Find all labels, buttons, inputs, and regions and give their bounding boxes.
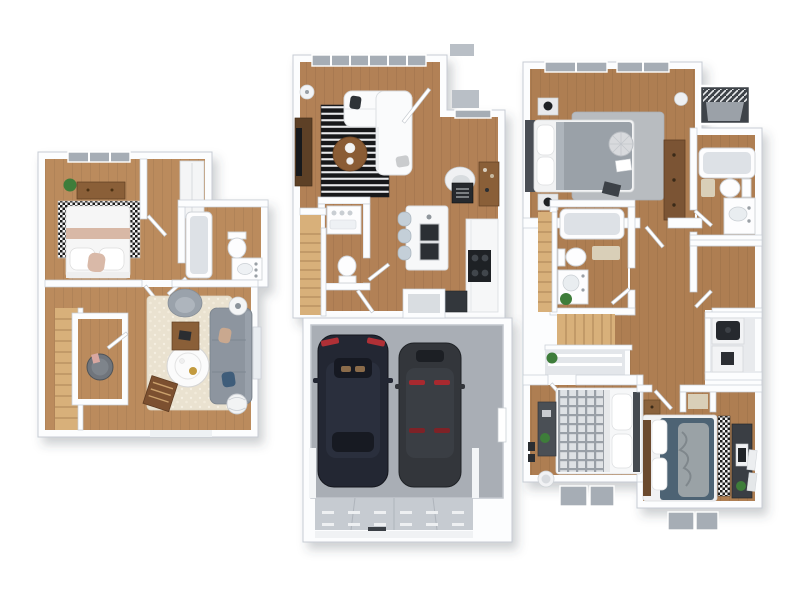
bar-cabinet bbox=[479, 162, 499, 206]
lamp-icon bbox=[544, 102, 553, 111]
vase bbox=[675, 93, 688, 106]
floor-plan-image bbox=[0, 0, 800, 600]
long-dresser bbox=[664, 140, 685, 220]
bedroom-window bbox=[68, 152, 130, 162]
hall-toilet bbox=[558, 248, 586, 266]
exterior-stoop bbox=[452, 90, 479, 108]
potted-plant-icon bbox=[64, 179, 77, 192]
bedroom3-window-b bbox=[696, 512, 718, 530]
dresser bbox=[77, 182, 125, 199]
balcony-railing bbox=[703, 89, 747, 102]
balcony-deck bbox=[706, 102, 744, 121]
closet-plant-icon bbox=[547, 353, 558, 364]
windshield bbox=[332, 432, 374, 452]
nightstand-top bbox=[538, 98, 558, 115]
exterior-pad-top bbox=[450, 44, 474, 56]
stool-1 bbox=[398, 212, 411, 226]
master-vanity bbox=[724, 198, 755, 234]
bath-wall-left bbox=[178, 207, 185, 263]
bed-teal bbox=[643, 415, 717, 501]
living-wall-b bbox=[172, 280, 258, 287]
balcony bbox=[700, 86, 750, 124]
bedroom2-desk bbox=[538, 402, 556, 456]
linen-closet bbox=[545, 350, 625, 375]
tv-console bbox=[295, 118, 312, 186]
bedroom2-window-b bbox=[590, 486, 614, 506]
bath-mat bbox=[701, 179, 715, 197]
island-faucet bbox=[427, 215, 432, 220]
hall-tub bbox=[560, 209, 624, 239]
hall-bath-mat bbox=[592, 246, 620, 260]
utility-closet bbox=[72, 313, 128, 405]
book bbox=[615, 159, 631, 172]
powder-toilet bbox=[338, 256, 356, 283]
master-wall-b bbox=[668, 218, 702, 228]
bedroom2-window-a bbox=[560, 486, 587, 506]
kitchen-window bbox=[455, 110, 491, 118]
bed-plaid bbox=[556, 388, 642, 474]
vanity-lower bbox=[232, 258, 262, 280]
living-window-right bbox=[253, 327, 261, 379]
plan-upper-level bbox=[523, 62, 762, 530]
island-sink-a bbox=[420, 224, 439, 241]
basket bbox=[227, 394, 247, 414]
island-sink-b bbox=[420, 243, 439, 260]
master-toilet bbox=[720, 179, 751, 197]
wall-frame-a bbox=[528, 442, 535, 451]
garage-threshold bbox=[315, 531, 473, 538]
bedroom3-nightstand bbox=[644, 400, 660, 414]
vanity-plant-icon bbox=[560, 293, 572, 305]
textured-throw bbox=[678, 423, 709, 497]
toilet-lower bbox=[228, 232, 246, 258]
plan-lower-level bbox=[38, 152, 268, 437]
bedroom3-window-a bbox=[668, 512, 694, 530]
dark-pillow bbox=[349, 95, 362, 109]
living-window-bottom bbox=[150, 430, 212, 437]
living-wall-a bbox=[45, 280, 142, 287]
coat-closet bbox=[403, 289, 445, 318]
round-dining-table bbox=[333, 137, 367, 171]
bed-lower bbox=[66, 206, 130, 278]
kitchen-counter bbox=[466, 219, 498, 312]
garage-door-apron bbox=[315, 498, 473, 531]
laundry-closet bbox=[705, 312, 762, 380]
car-navy bbox=[313, 335, 393, 487]
garage-door-rail-left bbox=[309, 448, 316, 498]
rear-window bbox=[334, 358, 372, 378]
master-headboard bbox=[525, 120, 535, 192]
plan-main-level bbox=[293, 44, 512, 542]
closet-mat bbox=[688, 394, 708, 409]
powder-vanity bbox=[327, 206, 361, 234]
dryer bbox=[712, 346, 743, 372]
wall-frame-b bbox=[528, 454, 535, 462]
round-pouf bbox=[609, 132, 633, 156]
desk-with-laptop bbox=[172, 322, 199, 350]
gray-sofa bbox=[210, 308, 252, 404]
car-charcoal bbox=[395, 343, 465, 487]
garage-door-rail-right bbox=[472, 448, 479, 498]
stair-landing-floor bbox=[615, 312, 630, 345]
desk-plant-icon bbox=[540, 433, 550, 443]
garage-door-handle bbox=[368, 527, 386, 531]
garage-man-door bbox=[498, 408, 506, 442]
blue-pillow bbox=[221, 371, 236, 388]
bath-wall-top bbox=[178, 200, 268, 207]
bathtub-lower bbox=[186, 212, 212, 278]
bedroom-partition-wall bbox=[140, 159, 147, 219]
master-tub bbox=[699, 148, 755, 178]
dresser-plant-icon bbox=[736, 481, 746, 491]
hall-vanity bbox=[558, 270, 588, 305]
washer bbox=[712, 318, 744, 344]
round-coffee-table bbox=[167, 345, 209, 387]
stool-2 bbox=[398, 229, 411, 243]
decor-sign bbox=[452, 183, 473, 203]
cooktop bbox=[468, 250, 491, 282]
armchair-lower bbox=[168, 289, 202, 317]
stool-3 bbox=[398, 246, 411, 260]
diamond-runner-rug bbox=[718, 416, 730, 496]
base-cabinet-dark bbox=[443, 291, 467, 312]
floor-plan-svg bbox=[0, 0, 800, 600]
